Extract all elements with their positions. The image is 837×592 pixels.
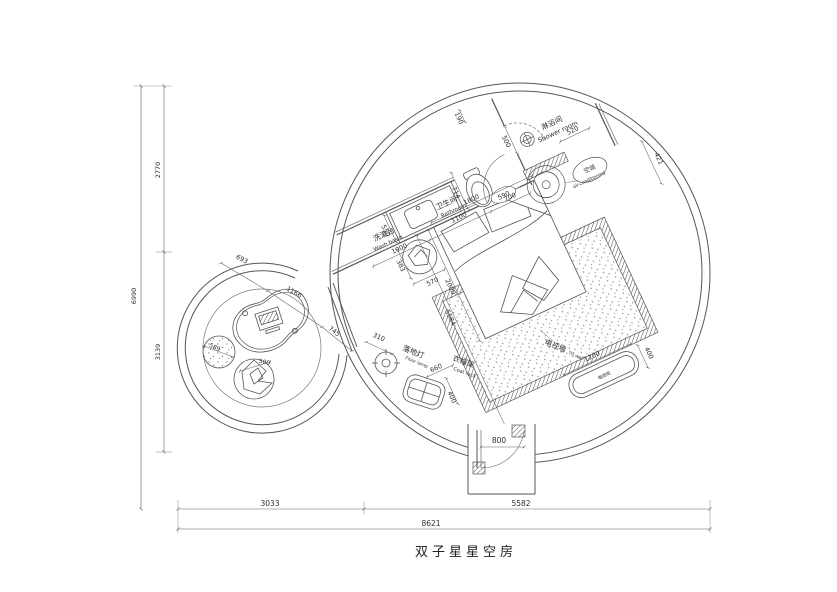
shower-drain-icon bbox=[518, 130, 537, 149]
dim-tv-400: 400 bbox=[643, 346, 656, 361]
main-room-content: 590 bbox=[293, 41, 744, 478]
dim-shower-door: 500 bbox=[500, 134, 513, 149]
dim-left-top: 2770 bbox=[154, 162, 162, 179]
shower-bench bbox=[523, 152, 568, 180]
dim-rack-660: 660 bbox=[429, 362, 444, 375]
plan-title: 双子星星空房 bbox=[415, 544, 517, 560]
floor-plan-sheet: 6990 2770 3139 3033 5582 8621 bbox=[0, 0, 837, 592]
dim-ac-421: 421 bbox=[652, 151, 665, 166]
dim-lounge-693: 693 bbox=[235, 253, 250, 266]
pouf bbox=[203, 336, 235, 368]
coat-rack bbox=[401, 373, 448, 412]
dim-lounge-1166: 1166 bbox=[285, 285, 303, 300]
faucet-icon bbox=[416, 206, 421, 211]
dim-bath-190: 190 bbox=[453, 111, 466, 126]
label-tv-cabinet: 电视柜 bbox=[597, 369, 613, 381]
label-ac-cn: 空调 bbox=[582, 163, 596, 175]
dim-bottom-total: 8621 bbox=[421, 519, 440, 528]
dim-lamp-310: 310 bbox=[372, 331, 387, 344]
shower-door-arc bbox=[504, 113, 545, 154]
dim-rack-400: 400 bbox=[446, 390, 459, 405]
tea-table bbox=[225, 284, 317, 360]
dim-left-bottom: 3139 bbox=[154, 344, 162, 361]
dim-bottom-right: 5582 bbox=[511, 499, 530, 508]
dim-lounge-745: 745 bbox=[327, 324, 342, 338]
dim-stool-383: 383 bbox=[394, 258, 407, 273]
lamp-dim-line bbox=[366, 342, 392, 354]
entrance-vestibule: 800 bbox=[468, 424, 535, 494]
dim-left-total: 6990 bbox=[130, 288, 138, 305]
dim-bottom-left: 3033 bbox=[260, 499, 279, 508]
floor-plan-drawing: 6990 2770 3139 3033 5582 8621 bbox=[0, 0, 837, 592]
floor-lamp bbox=[372, 349, 400, 377]
dim-entry-800: 800 bbox=[492, 436, 507, 445]
